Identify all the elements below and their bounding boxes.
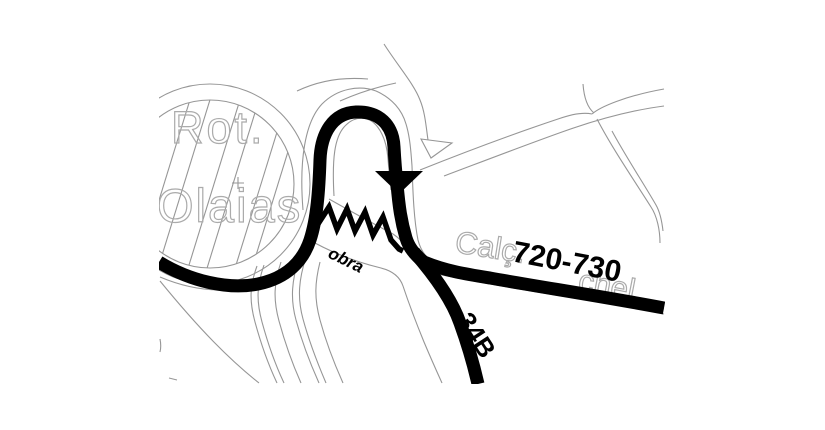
avenue-corner-edge: [592, 89, 664, 114]
map-drawing: Rot. Olaias Calç. chel 720-730 34B obra: [0, 0, 825, 430]
traffic-island: [421, 139, 452, 158]
construction-label: obra: [325, 244, 366, 277]
exit-road-line: [292, 258, 319, 383]
exit-road-line: [299, 257, 326, 383]
edge-fragment: [169, 378, 177, 380]
street-arc-above-roundabout: [297, 78, 368, 91]
direction-arrow-icon: [375, 171, 423, 194]
loop-inner-kerb: [333, 118, 391, 196]
avenue-lower-edge: [444, 106, 664, 176]
north-east-hook: [583, 84, 594, 113]
construction-zigzag-icon: [316, 205, 403, 251]
exit-road-left-edge: [160, 281, 259, 383]
descending-street-edge: [597, 119, 660, 243]
street-edge-above-loop: [340, 83, 396, 101]
edge-fragment: [160, 339, 161, 352]
map-canvas: Rot. Olaias Calç. chel 720-730 34B obra: [0, 0, 825, 430]
roundabout-label-line1: Rot.: [171, 102, 266, 153]
exit-road-line: [316, 262, 343, 383]
avenue-upper-edge: [420, 113, 592, 170]
roundabout-label-line2: Olaias: [157, 179, 302, 232]
